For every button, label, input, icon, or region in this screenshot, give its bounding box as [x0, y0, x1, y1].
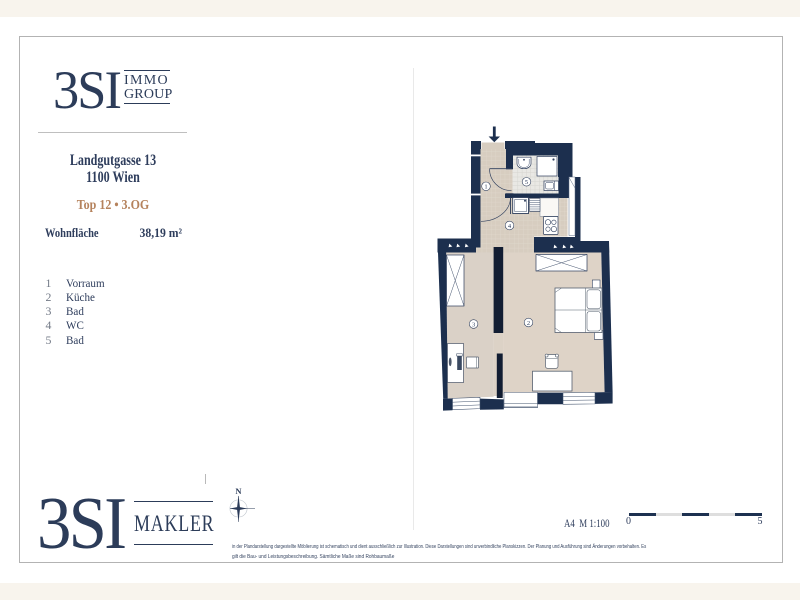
svg-text:N: N — [235, 486, 242, 496]
svg-text:1: 1 — [484, 184, 487, 191]
svg-text:2: 2 — [527, 320, 530, 327]
svg-text:3: 3 — [472, 321, 475, 328]
svg-text:5: 5 — [525, 179, 528, 186]
